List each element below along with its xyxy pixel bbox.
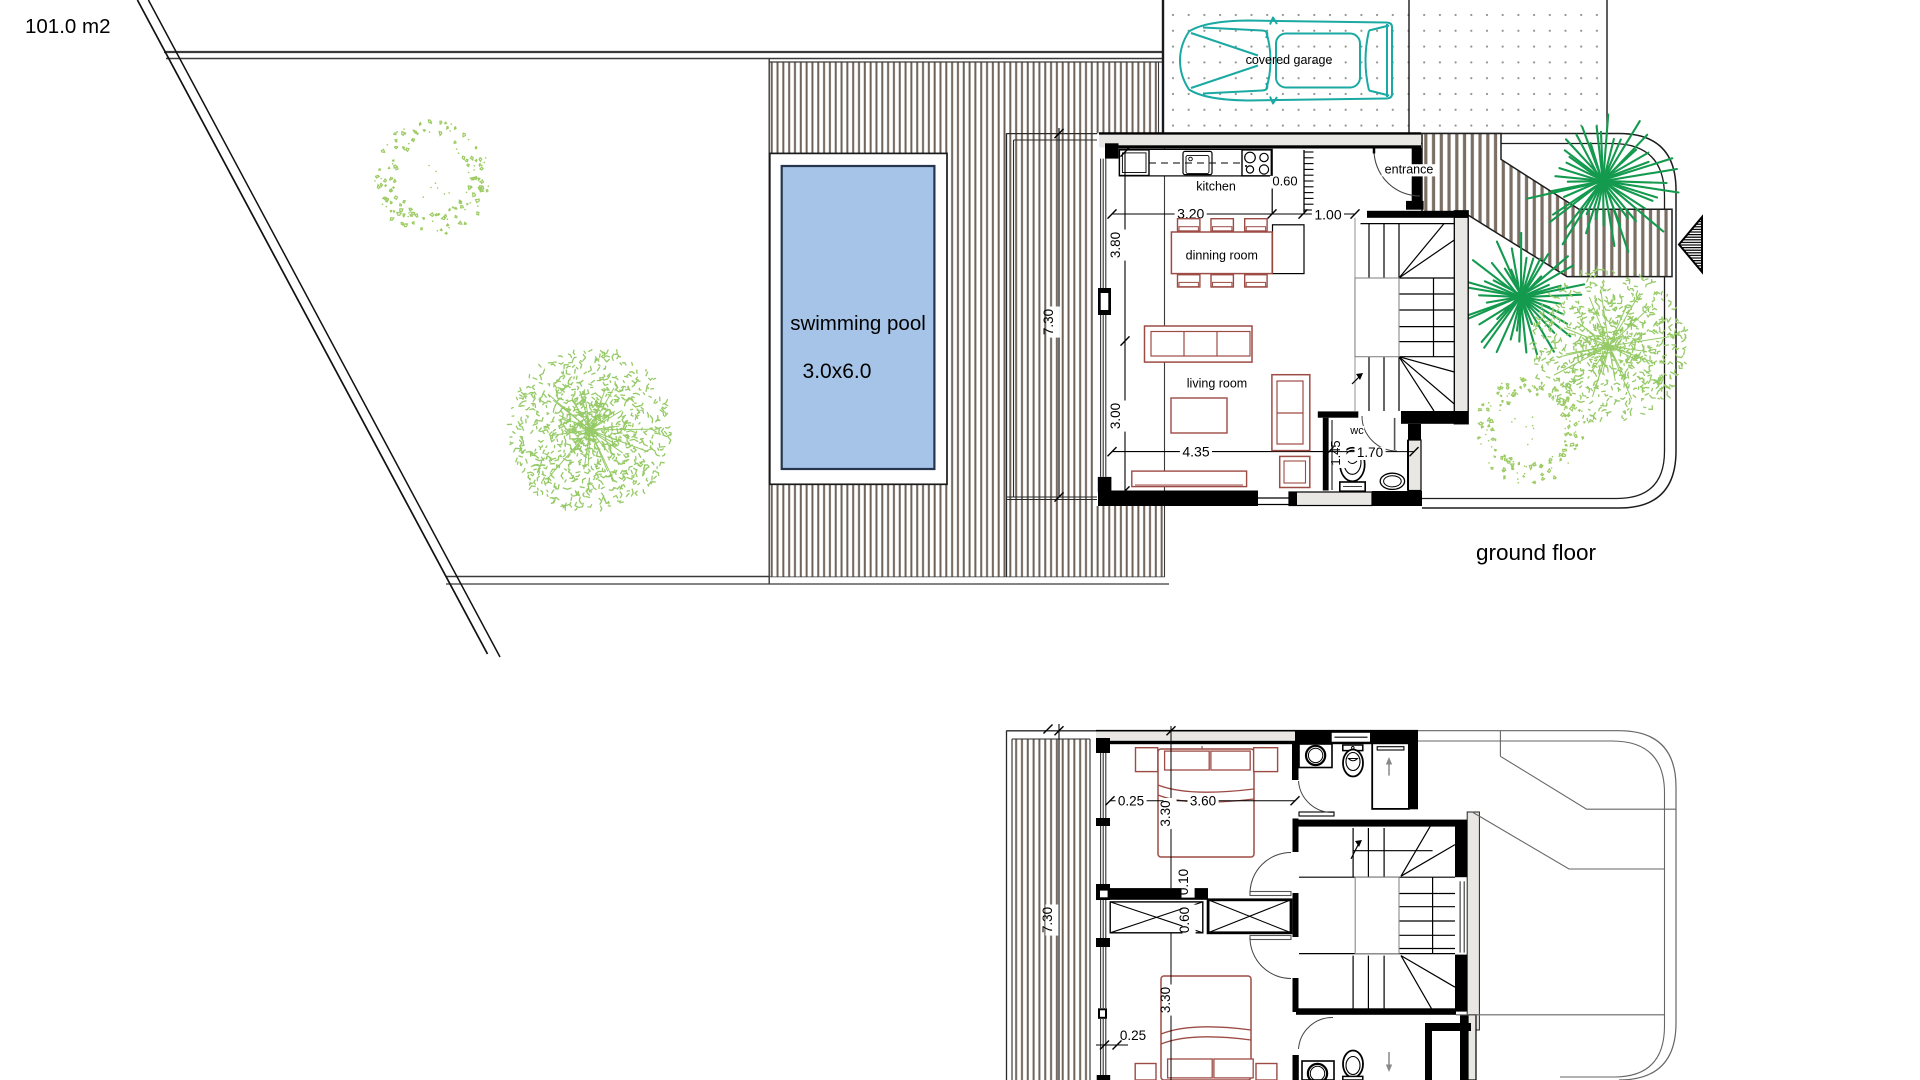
svg-text:3.00: 3.00	[1108, 403, 1123, 429]
svg-text:7.30: 7.30	[1041, 309, 1056, 335]
svg-text:4.35: 4.35	[1182, 444, 1209, 460]
svg-text:1.00: 1.00	[1314, 207, 1341, 223]
svg-text:7.30: 7.30	[1040, 907, 1055, 933]
svg-text:ground floor: ground floor	[1476, 540, 1597, 565]
svg-text:3.30: 3.30	[1158, 987, 1173, 1013]
svg-text:3.30: 3.30	[1158, 800, 1173, 826]
svg-text:101.0 m2: 101.0 m2	[25, 15, 110, 38]
svg-text:covered garage: covered garage	[1246, 53, 1333, 67]
svg-text:swimming pool: swimming pool	[790, 312, 926, 335]
svg-text:dinning room: dinning room	[1186, 249, 1258, 263]
svg-text:0.25: 0.25	[1118, 794, 1144, 809]
svg-text:3.80: 3.80	[1108, 232, 1123, 258]
svg-text:entrance: entrance	[1385, 163, 1434, 177]
svg-text:0.10: 0.10	[1176, 869, 1191, 895]
svg-text:0.60: 0.60	[1272, 174, 1297, 189]
svg-text:kitchen: kitchen	[1196, 180, 1236, 194]
svg-text:living room: living room	[1187, 377, 1247, 391]
svg-text:wc: wc	[1349, 425, 1364, 437]
svg-text:0.25: 0.25	[1120, 1028, 1146, 1043]
svg-text:3.0x6.0: 3.0x6.0	[803, 360, 872, 383]
svg-text:1.45: 1.45	[1328, 440, 1343, 465]
svg-text:0.60: 0.60	[1177, 907, 1192, 933]
svg-text:3.60: 3.60	[1190, 794, 1216, 809]
svg-text:1.70: 1.70	[1357, 445, 1383, 460]
